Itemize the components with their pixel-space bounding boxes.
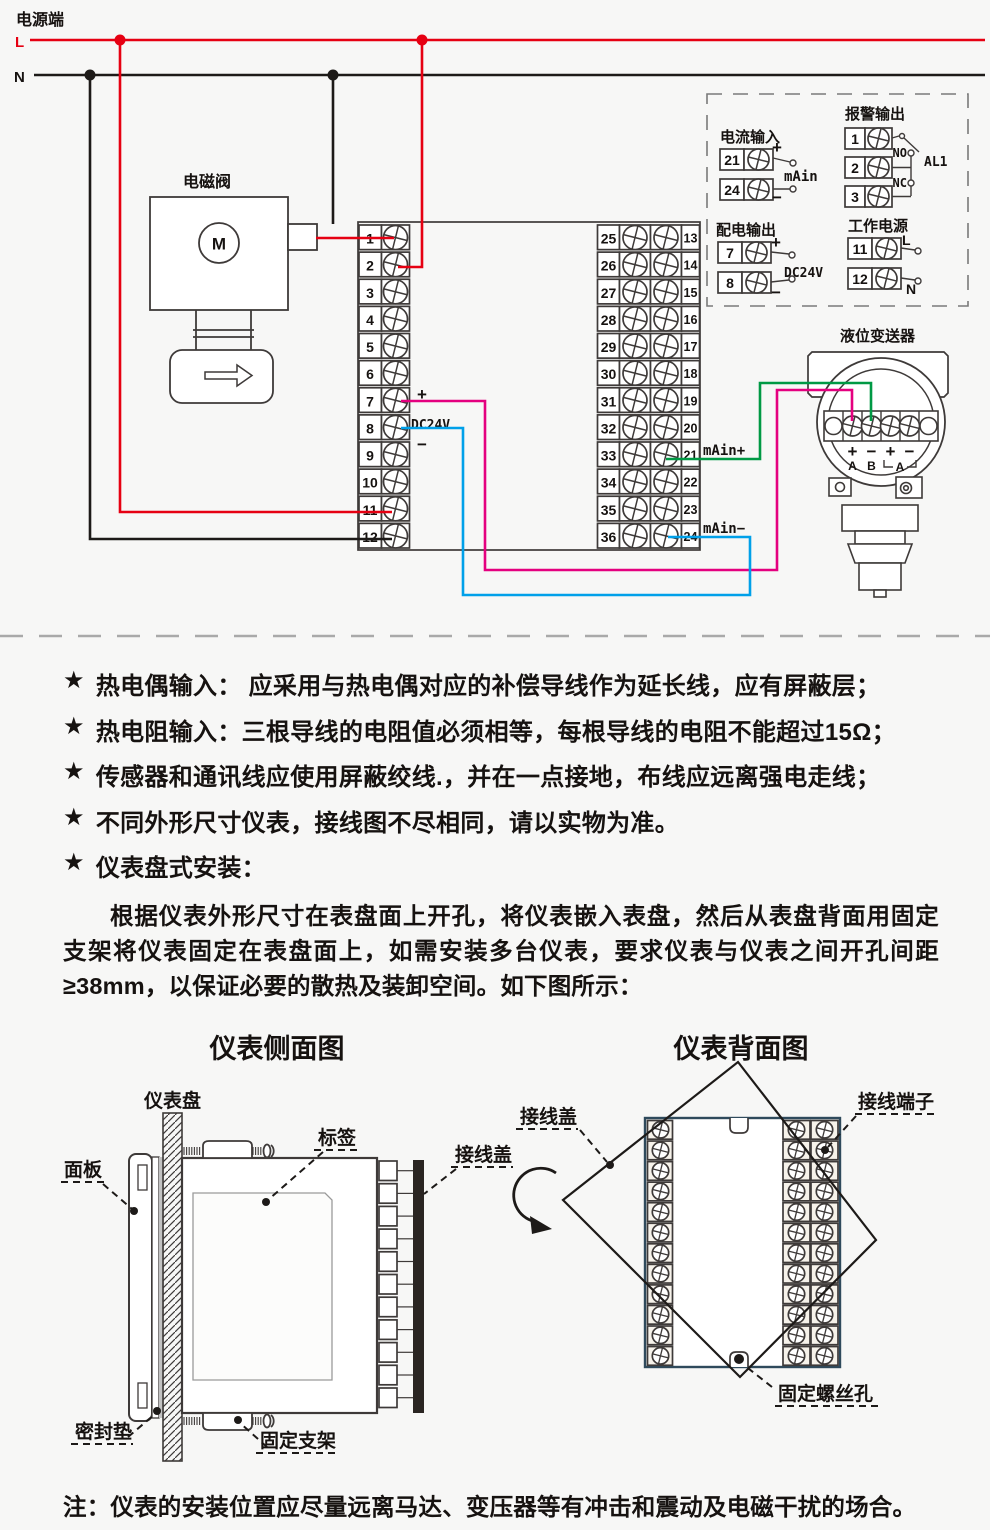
screw-hole-dot	[734, 1354, 744, 1364]
svg-text:6: 6	[366, 366, 374, 382]
solenoid-valve: 电磁阀 M	[150, 172, 317, 403]
work-power-title: 工作电源	[848, 217, 908, 235]
rotation-arrow-icon	[514, 1168, 556, 1222]
screw-hole-label: 固定螺丝孔	[778, 1382, 873, 1405]
dist-minus: −	[771, 283, 781, 302]
svg-text:3: 3	[851, 189, 859, 205]
main-minus-label: mAin−	[703, 521, 745, 537]
left-terminal-row: 4	[359, 304, 410, 333]
star-bullet-icon: ★	[63, 848, 85, 877]
power-l-label: L	[15, 34, 24, 51]
svg-text:14: 14	[684, 259, 698, 273]
svg-text:25: 25	[601, 231, 617, 247]
star-bullet-icon: ★	[63, 666, 85, 695]
svg-text:19: 19	[684, 394, 698, 408]
front-bezel	[129, 1154, 152, 1421]
left-terminal-row: 10	[359, 467, 410, 496]
svg-text:12: 12	[362, 529, 378, 545]
left-terminal-row: 11	[359, 494, 410, 523]
inset-terminal: 1	[845, 126, 892, 151]
right-terminal-row: 3119	[598, 386, 700, 415]
inset-terminal: 7	[718, 240, 771, 265]
inset-terminal: 21	[720, 147, 773, 172]
right-terminal-row: 2917	[598, 332, 700, 361]
terminal-b-label: B	[867, 459, 876, 473]
terminal-cover-bar	[413, 1160, 424, 1413]
note-text: 热电阻输入：三根导线的电阻值必须相等，每根导线的电阻不能超过15Ω；	[96, 712, 896, 747]
terminal-function-inset: 电流输入 报警输出 配电输出 工作电源 2124781112123 + − mA…	[707, 94, 968, 306]
bracket-a-label: A	[896, 460, 905, 474]
inset-terminal: 2	[845, 155, 892, 180]
left-terminal-row: 2	[359, 250, 410, 279]
front-panel-label: 面板	[64, 1158, 103, 1181]
back-view-diagram: 接线盖 接线端子 固定螺丝孔	[514, 1062, 937, 1406]
cover-label-back: 接线盖	[520, 1105, 577, 1128]
svg-text:22: 22	[684, 476, 698, 490]
svg-text:8: 8	[726, 275, 734, 291]
note-line: ★热电偶输入： 应采用与热电偶对应的补偿导线作为延长线，应有屏蔽层；	[63, 666, 975, 712]
svg-text:10: 10	[362, 475, 378, 491]
inset-terminal: 3	[845, 184, 892, 209]
svg-text:29: 29	[601, 339, 617, 355]
star-bullet-icon: ★	[63, 712, 85, 741]
dist-plus: +	[771, 233, 781, 252]
tag-label: 标签	[318, 1126, 357, 1149]
transmitter-body	[829, 477, 922, 597]
svg-text:2: 2	[851, 160, 859, 176]
star-bullet-icon: ★	[63, 757, 85, 786]
current-minus: −	[772, 188, 782, 207]
power-terminal-title: 电源端	[16, 10, 64, 29]
level-transmitter: 液位变送器 + − + − A B A	[808, 327, 948, 597]
dc24v-minus: −	[417, 435, 427, 454]
svg-text:30: 30	[601, 366, 617, 382]
work-l: L	[902, 232, 911, 248]
installation-diagrams: 仪表侧面图 仪表背面图 仪表盘 面板	[0, 1010, 990, 1480]
dist-dc24v: DC24V	[784, 266, 823, 281]
transmitter-title: 液位变送器	[840, 327, 916, 345]
svg-text:11: 11	[363, 502, 378, 518]
right-terminal-row: 3018	[598, 359, 700, 388]
dc24v-label: DC24V	[411, 418, 450, 433]
svg-text:17: 17	[684, 340, 698, 354]
svg-text:24: 24	[724, 182, 740, 198]
wiring-diagram: 电源端 L N 电磁阀 M 12345678910111225132614271…	[0, 0, 990, 648]
note-text: 传感器和通讯线应使用屏蔽绞线.，并在一点接地，布线应远离强电走线；	[96, 757, 881, 792]
star-bullet-icon: ★	[63, 803, 85, 832]
current-plus: +	[772, 138, 782, 157]
svg-text:2: 2	[366, 258, 374, 274]
alarm-al1: AL1	[924, 155, 948, 170]
svg-text:12: 12	[852, 271, 868, 287]
page: { "colors":{ "red":"#e60012","dark":"#3e…	[0, 0, 990, 1530]
solenoid-label: 电磁阀	[183, 172, 231, 191]
svg-text:21: 21	[724, 152, 740, 168]
current-main-label: mAin	[784, 169, 818, 185]
bottom-note: 注：仪表的安装位置应尽量远离马达、变压器等有冲击和震动及电磁干扰的场合。	[63, 1488, 916, 1522]
svg-text:28: 28	[601, 312, 617, 328]
left-terminal-row: 3	[359, 277, 410, 306]
note-line: ★不同外形尺寸仪表，接线图不尽相同，请以实物为准。	[63, 803, 975, 849]
svg-text:7: 7	[366, 393, 374, 409]
power-rails: 电源端 L N	[14, 10, 985, 86]
terminals-label: 接线端子	[858, 1090, 934, 1113]
right-terminal-row: 3422	[598, 467, 700, 496]
alarm-no: NO	[893, 146, 907, 160]
svg-text:7: 7	[726, 245, 734, 261]
note-text: 仪表盘式安装：	[96, 848, 266, 883]
right-terminal-row: 3321	[598, 440, 700, 469]
svg-text:−: −	[905, 442, 915, 461]
svg-text:20: 20	[684, 421, 698, 435]
back-view-title: 仪表背面图	[673, 1034, 809, 1064]
svg-text:33: 33	[601, 448, 617, 464]
side-view-diagram: 仪表盘 面板 标签 接线盖 密封垫 固定支架	[61, 1089, 513, 1461]
main-terminal-strips: 1234567891011122513261427152816291730183…	[359, 223, 700, 550]
svg-text:26: 26	[601, 258, 617, 274]
svg-text:13: 13	[684, 232, 698, 246]
install-paragraph: 根据仪表外形尺寸在表盘面上开孔，将仪表嵌入表盘，然后从表盘背面用固定支架将仪表固…	[63, 899, 939, 1004]
note-text: 热电偶输入： 应采用与热电偶对应的补偿导线作为延长线，应有屏蔽层；	[96, 666, 881, 701]
note-line: ★热电阻输入：三根导线的电阻值必须相等，每根导线的电阻不能超过15Ω；	[63, 712, 975, 758]
right-terminal-row: 2614	[598, 250, 700, 279]
svg-text:5: 5	[366, 339, 374, 355]
svg-text:4: 4	[366, 312, 374, 328]
svg-text:1: 1	[851, 131, 859, 147]
terminal-a-label: A	[848, 459, 857, 473]
cover-label-side: 接线盖	[455, 1143, 512, 1166]
panel-hatched-bar	[163, 1113, 182, 1461]
work-n: N	[906, 281, 916, 297]
svg-text:23: 23	[684, 503, 698, 517]
section-divider	[0, 630, 990, 642]
left-terminal-row: 6	[359, 359, 410, 388]
inset-terminal: 8	[718, 270, 771, 295]
svg-text:15: 15	[684, 286, 698, 300]
svg-text:21: 21	[684, 449, 698, 463]
dist-output-title: 配电输出	[716, 221, 776, 239]
svg-text:3: 3	[366, 285, 374, 301]
svg-text:11: 11	[853, 241, 868, 257]
right-terminal-row: 3523	[598, 494, 700, 523]
solenoid-connector	[288, 224, 317, 250]
inset-terminal: 11	[848, 236, 901, 261]
svg-text:9: 9	[366, 448, 374, 464]
current-input-title: 电流输入	[720, 128, 780, 146]
right-terminal-row: 3220	[598, 413, 700, 442]
alarm-nc: NC	[893, 176, 907, 190]
power-n-label: N	[14, 69, 25, 86]
note-line: ★传感器和通讯线应使用屏蔽绞线.，并在一点接地，布线应远离强电走线；	[63, 757, 975, 803]
svg-text:27: 27	[601, 285, 617, 301]
svg-text:+: +	[886, 442, 896, 461]
panel-label: 仪表盘	[143, 1089, 201, 1112]
side-view-title: 仪表侧面图	[209, 1034, 345, 1064]
svg-text:18: 18	[684, 367, 698, 381]
note-text: 不同外形尺寸仪表，接线图不尽相同，请以实物为准。	[96, 803, 679, 838]
left-terminal-row: 12	[359, 521, 410, 550]
left-terminal-row: 9	[359, 440, 410, 469]
svg-text:31: 31	[601, 393, 617, 409]
svg-text:34: 34	[601, 475, 617, 491]
alarm-output-title: 报警输出	[845, 105, 905, 123]
svg-text:36: 36	[601, 529, 617, 545]
right-terminal-row: 2816	[598, 304, 700, 333]
inset-terminal: 12	[848, 266, 901, 291]
gasket-label: 密封垫	[75, 1420, 132, 1443]
wires	[90, 40, 871, 595]
inset-terminal: 24	[720, 177, 773, 202]
right-terminal-row: 2513	[598, 223, 700, 252]
main-plus-label: mAin+	[703, 443, 745, 459]
label-area	[193, 1193, 332, 1380]
right-terminal-row: 2715	[598, 277, 700, 306]
left-terminal-row: 5	[359, 332, 410, 361]
svg-text:16: 16	[684, 313, 698, 327]
notes-list: ★热电偶输入： 应采用与热电偶对应的补偿导线作为延长线，应有屏蔽层； ★热电阻输…	[63, 666, 975, 894]
bracket-label: 固定支架	[260, 1429, 336, 1452]
motor-m: M	[212, 235, 226, 254]
svg-text:32: 32	[601, 420, 617, 436]
svg-text:8: 8	[366, 420, 374, 436]
note-line: ★仪表盘式安装：	[63, 848, 975, 894]
svg-text:35: 35	[601, 502, 617, 518]
